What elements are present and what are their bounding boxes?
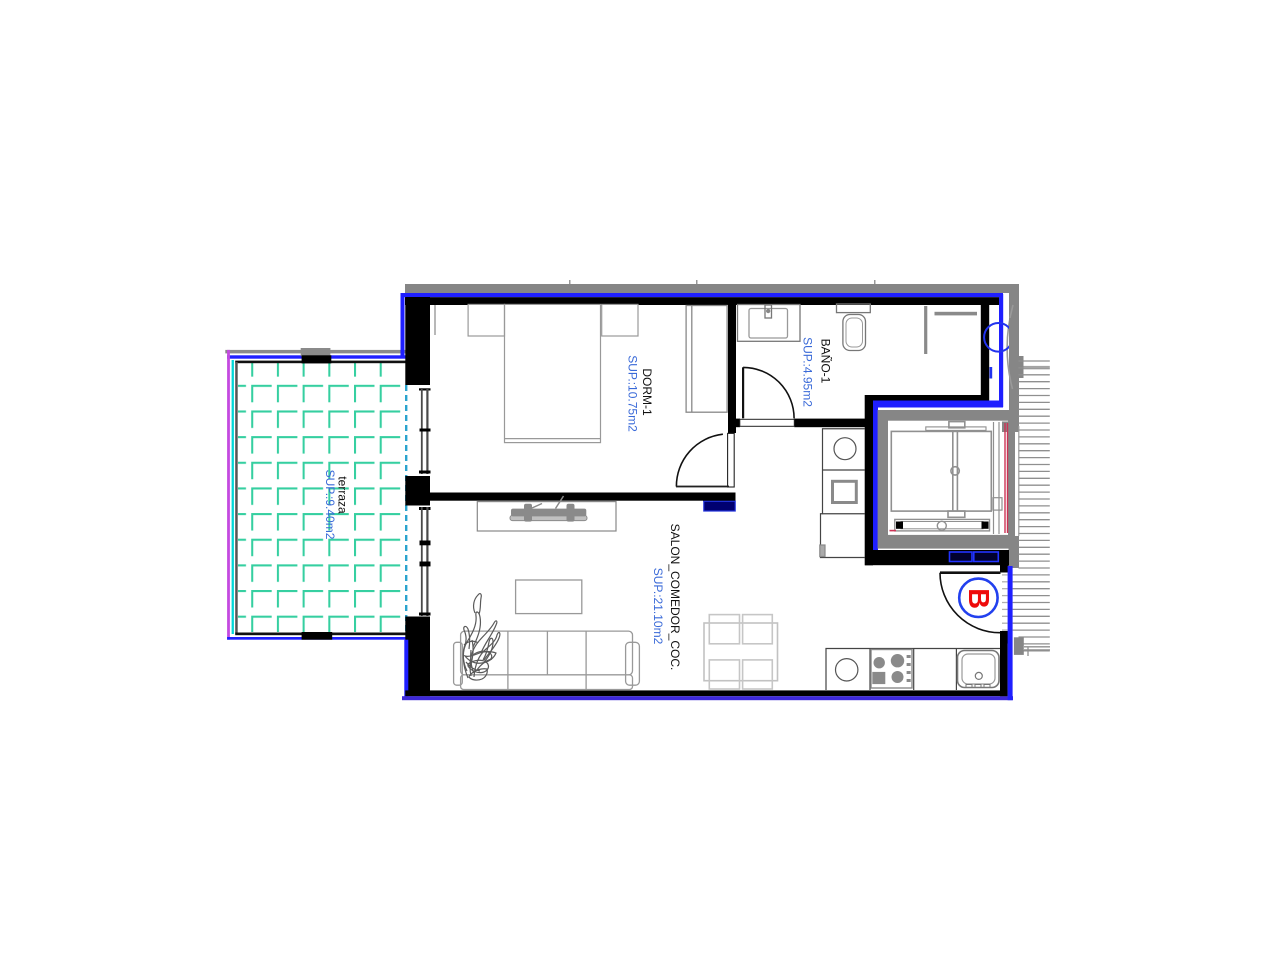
svg-text:BAÑO-1: BAÑO-1: [819, 339, 833, 384]
svg-text:SUP.:10.75m2: SUP.:10.75m2: [626, 355, 640, 432]
svg-text:SALON_COMEDOR_COC.: SALON_COMEDOR_COC.: [668, 524, 682, 671]
svg-text:SUP.:4.95m2: SUP.:4.95m2: [801, 337, 815, 407]
svg-text:B: B: [962, 588, 994, 609]
svg-text:SUP.:21.10m2: SUP.:21.10m2: [651, 568, 665, 645]
svg-text:SUP.:9.40m2: SUP.:9.40m2: [323, 470, 337, 540]
svg-text:DORM-1: DORM-1: [640, 368, 654, 416]
